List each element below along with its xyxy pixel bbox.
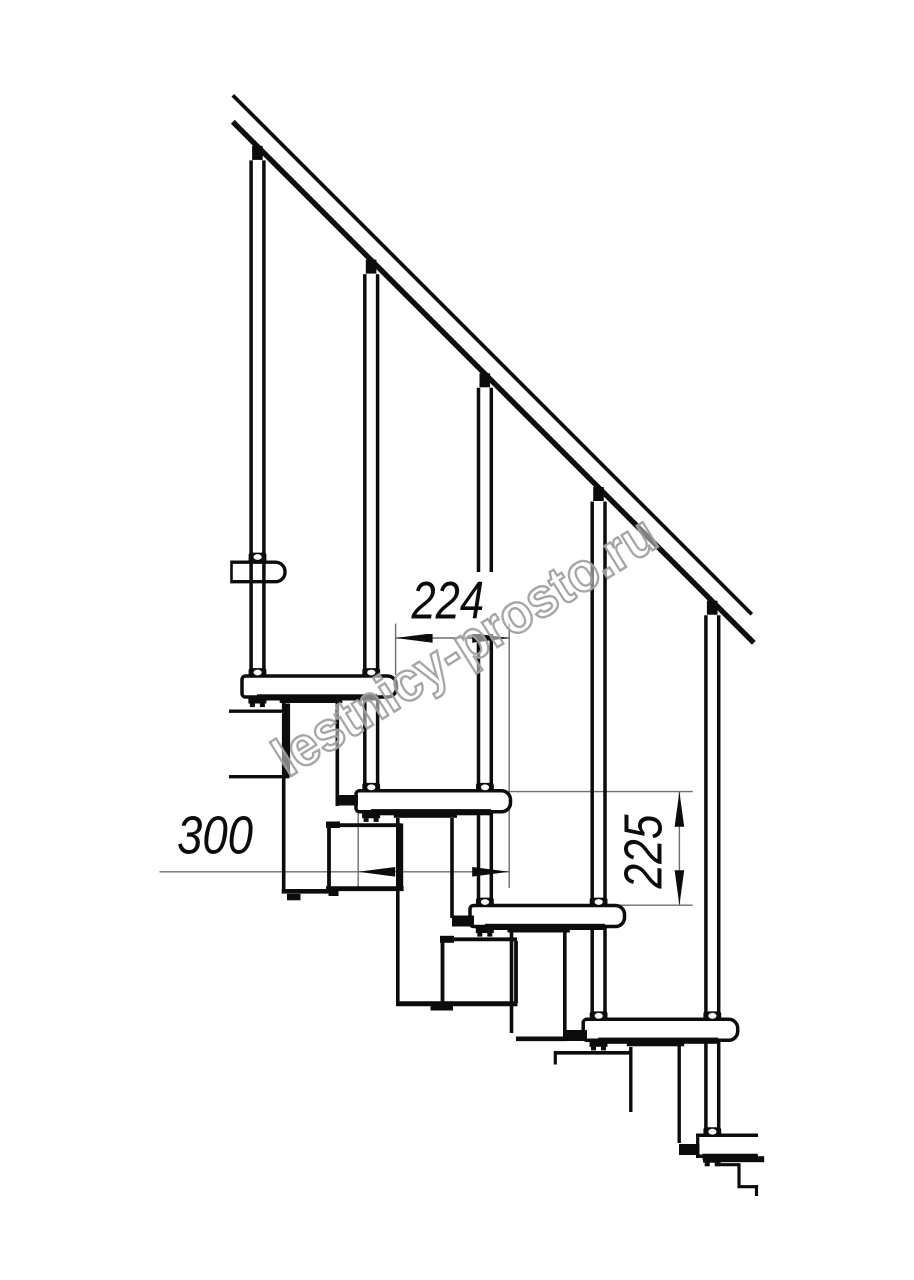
svg-text:300: 300 bbox=[177, 806, 253, 866]
svg-text:225: 225 bbox=[614, 814, 674, 890]
